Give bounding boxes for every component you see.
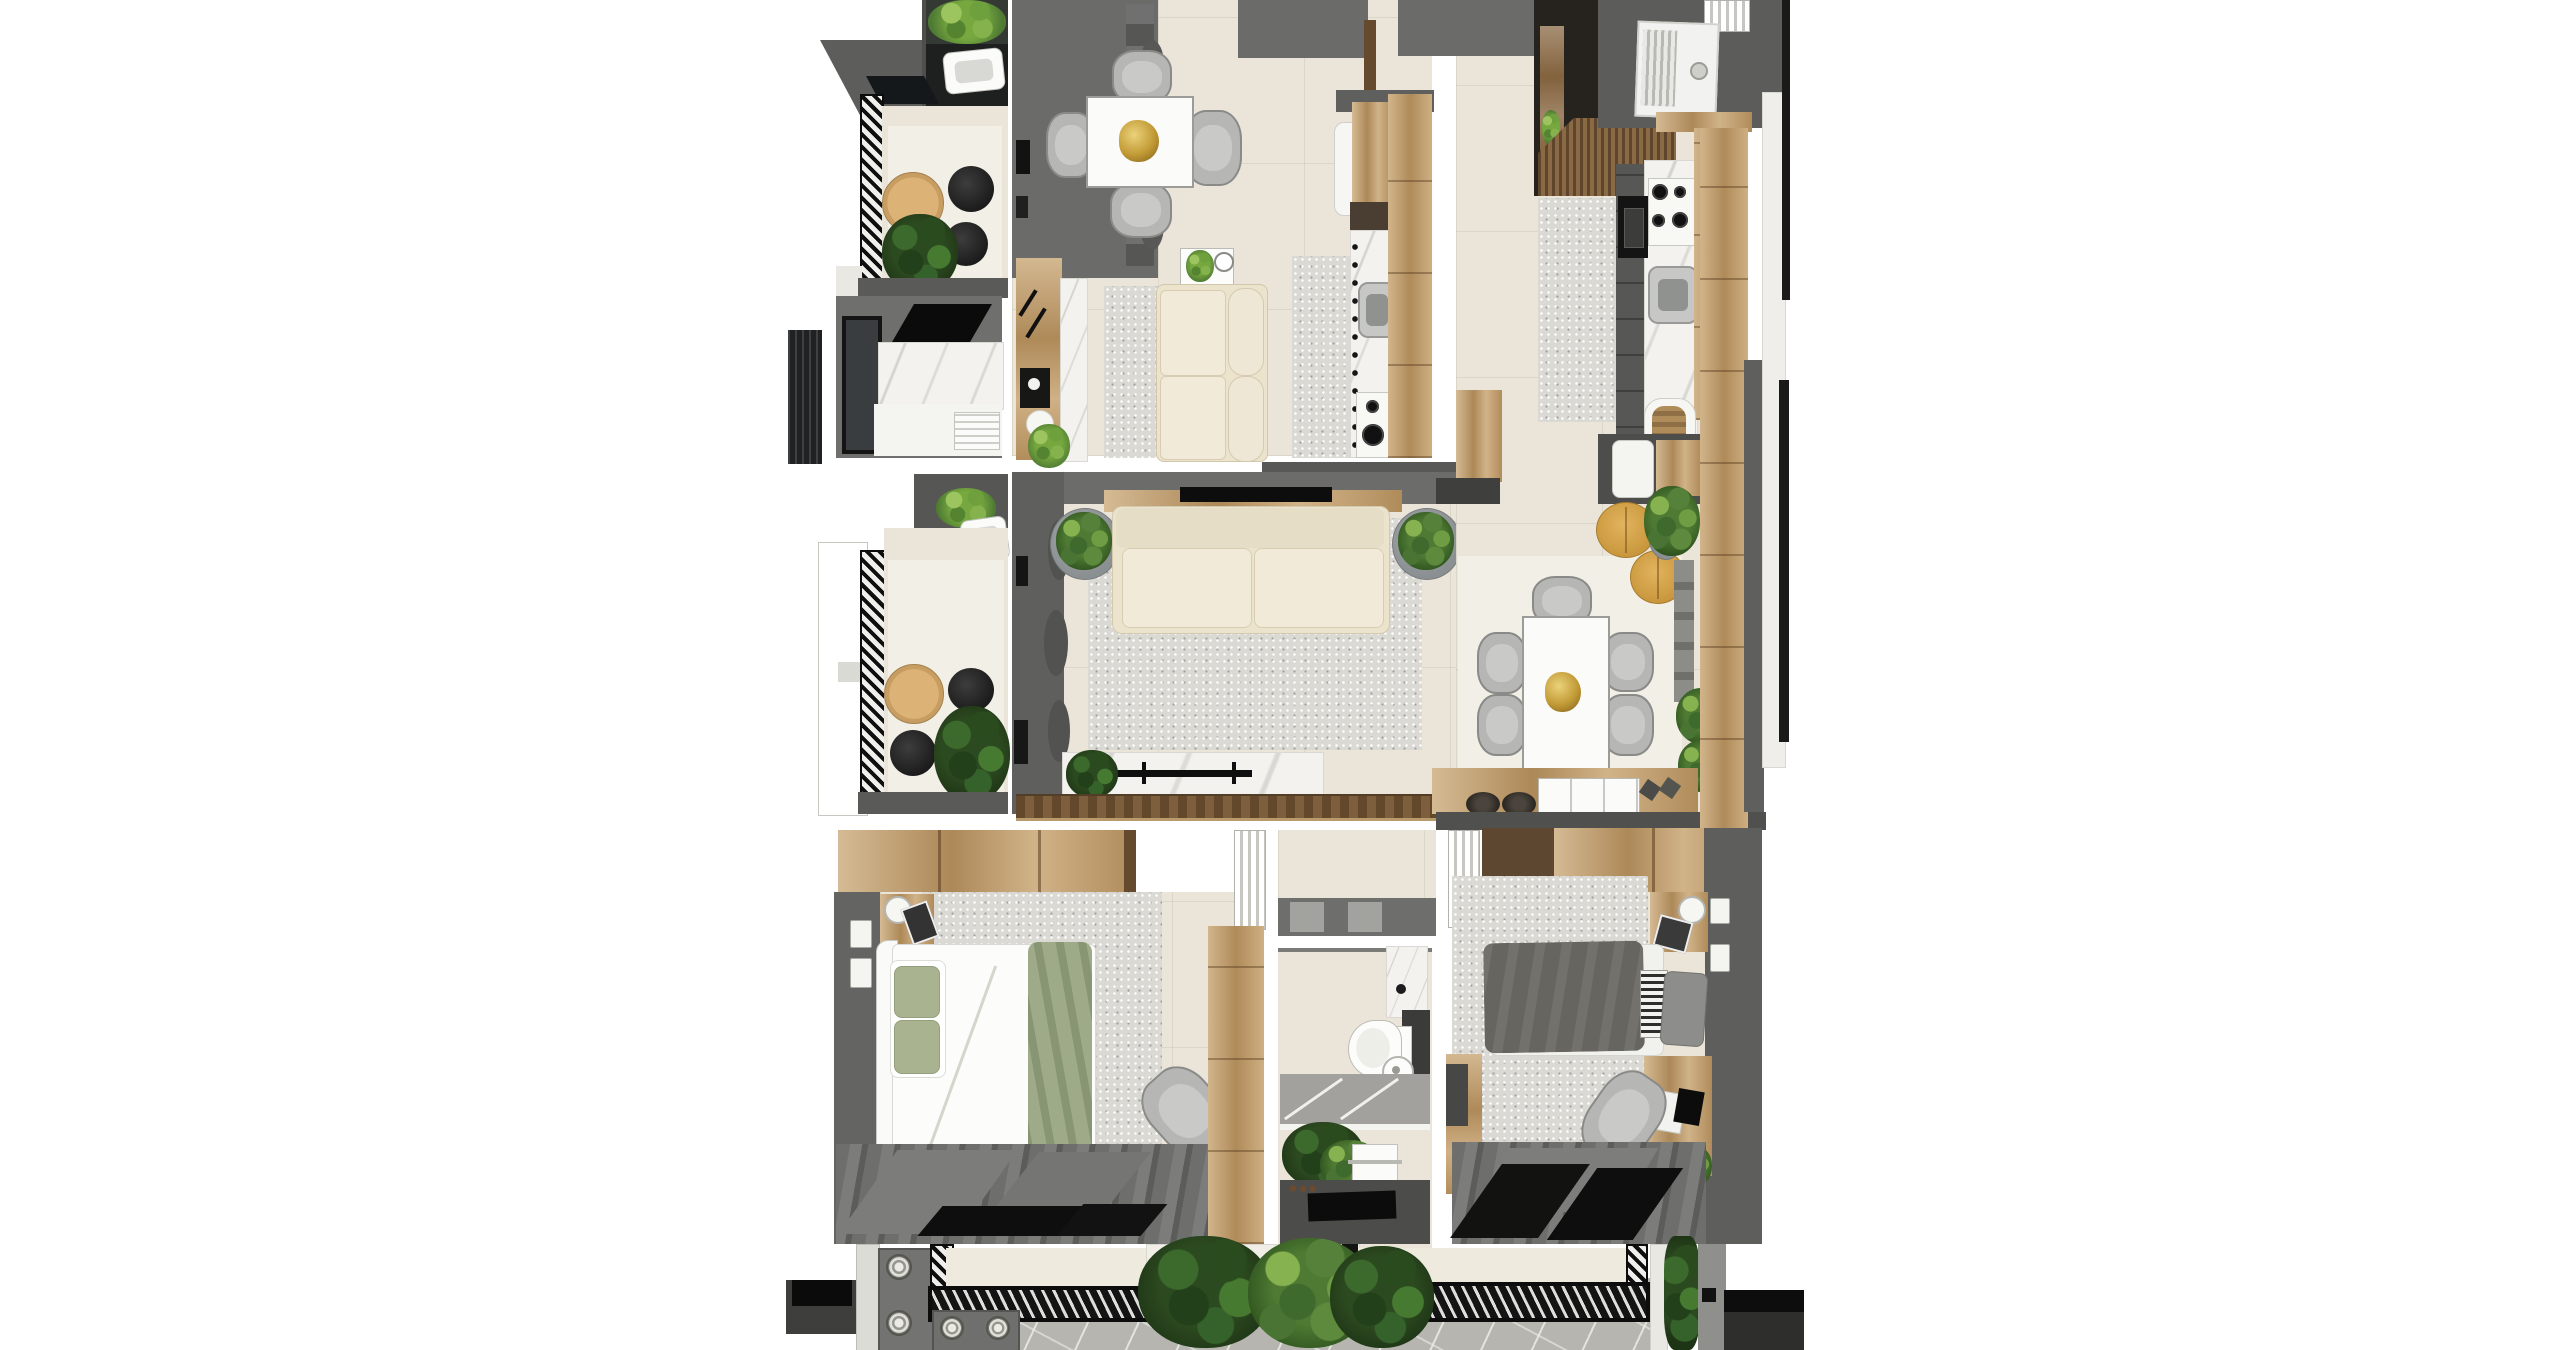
terrace-bottom	[0, 0, 2560, 1350]
marble-pillar	[856, 1244, 880, 1350]
monstera-cluster	[1330, 1246, 1434, 1348]
door-rosette	[886, 1310, 912, 1336]
door-rosette	[940, 1316, 964, 1340]
door-rosette	[986, 1316, 1010, 1340]
floor-plan-canvas	[0, 0, 2560, 1350]
planter-box-right-top	[1724, 1290, 1804, 1312]
vine-plant	[1664, 1236, 1700, 1350]
wall-socket	[1702, 1288, 1716, 1302]
planter-box-left-top	[792, 1280, 852, 1306]
door-rosette	[886, 1254, 912, 1280]
